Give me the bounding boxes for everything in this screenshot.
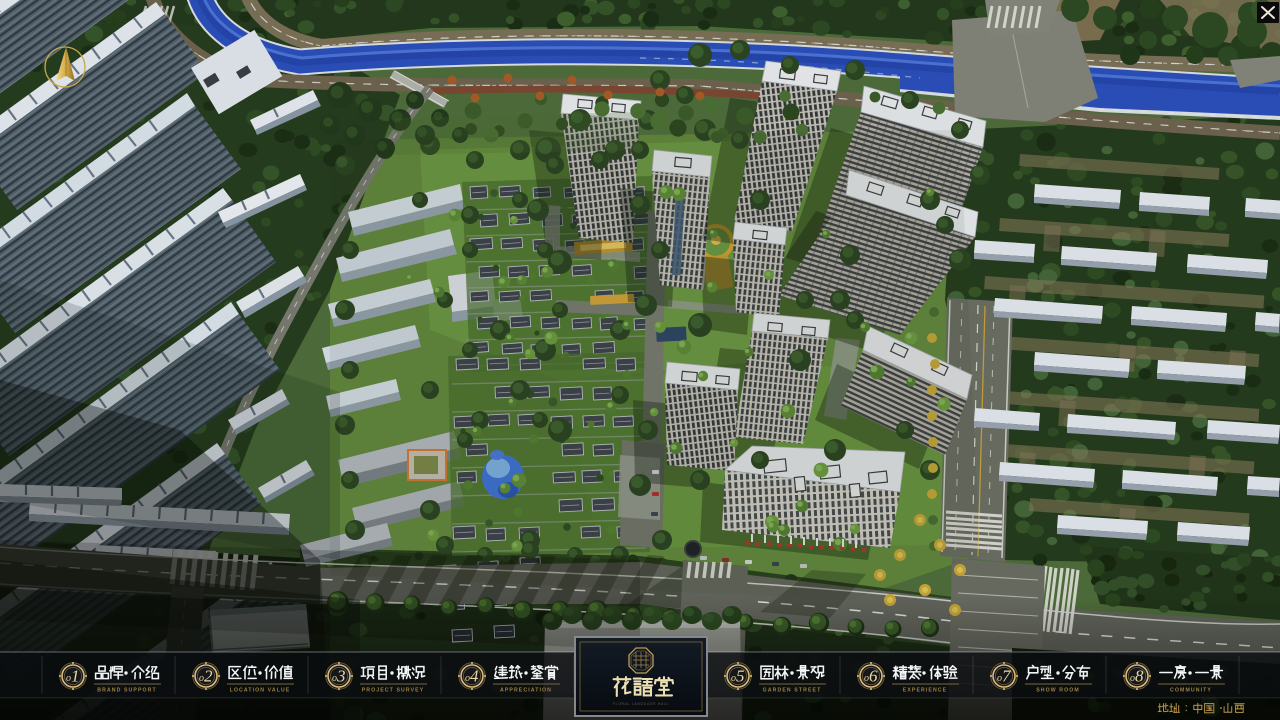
- svg-text:GARDEN STREET: GARDEN STREET: [763, 688, 822, 694]
- svg-text:LOCATION VALUE: LOCATION VALUE: [230, 688, 291, 694]
- svg-text:8: 8: [1135, 667, 1144, 686]
- svg-text:FLORAL LANGUAGE HALL: FLORAL LANGUAGE HALL: [613, 702, 669, 706]
- svg-text:EXPERIENCE: EXPERIENCE: [903, 688, 947, 694]
- svg-text:COMMUNITY: COMMUNITY: [1170, 688, 1212, 694]
- svg-text:6: 6: [869, 667, 878, 686]
- svg-text:BRAND SUPPORT: BRAND SUPPORT: [97, 688, 157, 694]
- svg-text:PROJECT SURVEY: PROJECT SURVEY: [362, 688, 425, 694]
- svg-text:4: 4: [470, 667, 479, 686]
- svg-text:APPRECIATION: APPRECIATION: [500, 688, 552, 694]
- svg-text:3: 3: [336, 667, 346, 686]
- svg-text:1: 1: [71, 667, 80, 686]
- svg-text:2: 2: [204, 667, 213, 686]
- svg-text:SHOW ROOM: SHOW ROOM: [1036, 688, 1080, 694]
- svg-text:5: 5: [736, 667, 745, 686]
